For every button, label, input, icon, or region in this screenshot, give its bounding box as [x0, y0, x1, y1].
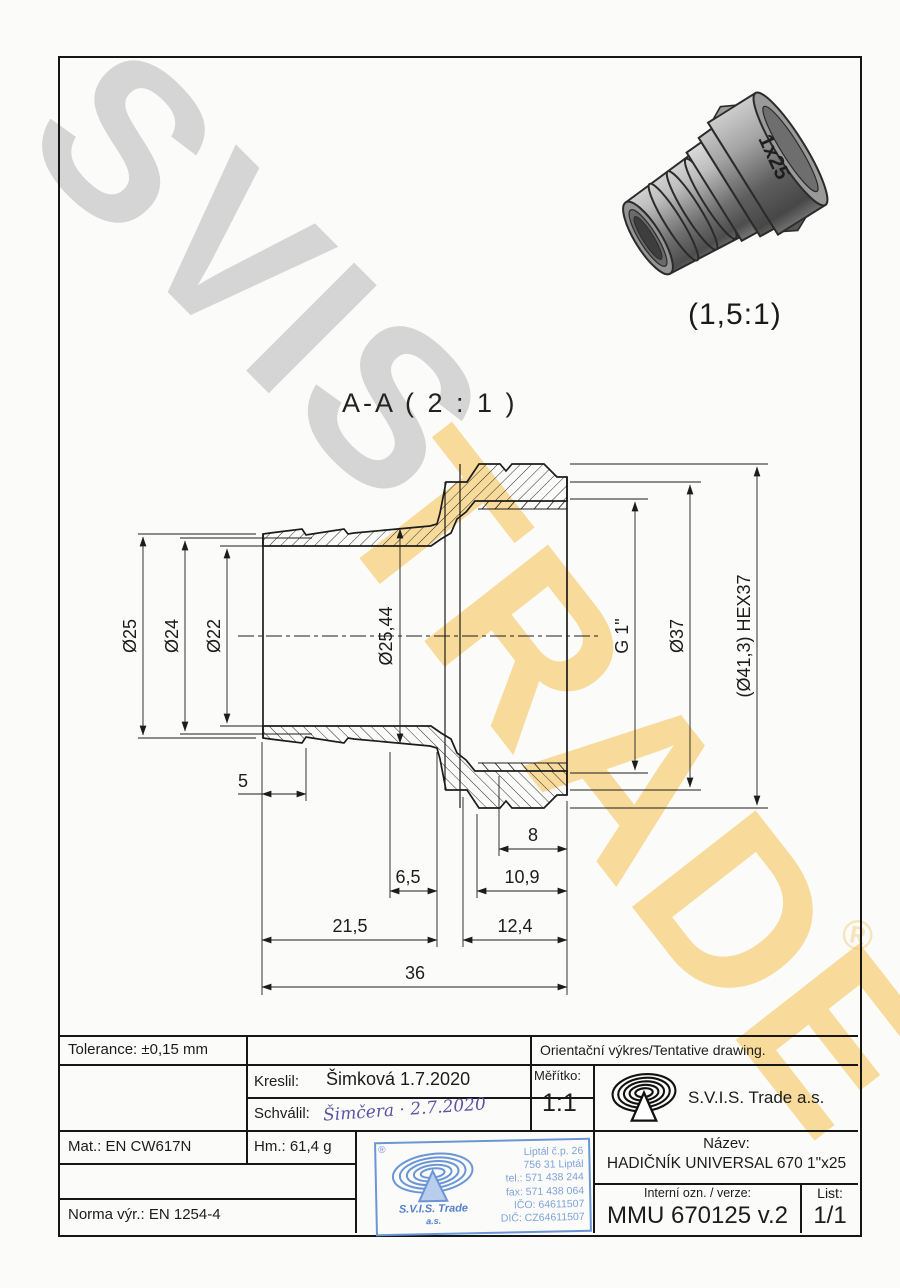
meritko-label: Měřítko:	[534, 1068, 581, 1083]
stamp-dic: DIČ: CZ64611507	[501, 1211, 585, 1226]
meritko-value: 1:1	[542, 1089, 577, 1118]
tolerance-note: Tolerance: ±0,15 mm	[68, 1041, 208, 1058]
interni-value: MMU 670125 v.2	[595, 1202, 800, 1230]
stamp-registered-icon: ®	[378, 1145, 386, 1156]
interni-label: Interní ozn. / verze:	[595, 1186, 800, 1200]
norma-value: Norma výr.: EN 1254-4	[68, 1206, 221, 1223]
stamp-company-suffix: a.s.	[426, 1216, 441, 1226]
schvalil-label: Schválil:	[254, 1105, 310, 1122]
list-value: 1/1	[802, 1202, 858, 1230]
company-stamp: ® S.V.I.S. Trade a.s. Liptál č.p. 26 756…	[374, 1138, 592, 1237]
kreslil-value: Šimková 1.7.2020	[326, 1069, 470, 1090]
stamp-company-name: S.V.I.S. Trade	[399, 1202, 468, 1215]
tentative-note: Orientační výkres/Tentative drawing.	[540, 1042, 766, 1058]
company-name: S.V.I.S. Trade a.s.	[688, 1088, 824, 1108]
title-block: Tolerance: ±0,15 mm Orientační výkres/Te…	[58, 56, 858, 1233]
list-label: List:	[802, 1185, 858, 1201]
material-value: Mat.: EN CW617N	[68, 1138, 191, 1155]
company-logo-icon	[609, 1069, 679, 1125]
mass-value: Hm.: 61,4 g	[254, 1138, 332, 1155]
stamp-tel: tel.: 571 438 244	[500, 1171, 584, 1186]
nazev-value: HADIČNÍK UNIVERSAL 670 1"x25	[595, 1155, 858, 1173]
schvalil-signature: Šimčera · 2.7.2020	[323, 1094, 487, 1125]
stamp-logo-icon	[388, 1148, 477, 1204]
nazev-label: Název:	[595, 1135, 858, 1152]
kreslil-label: Kreslil:	[254, 1073, 299, 1090]
